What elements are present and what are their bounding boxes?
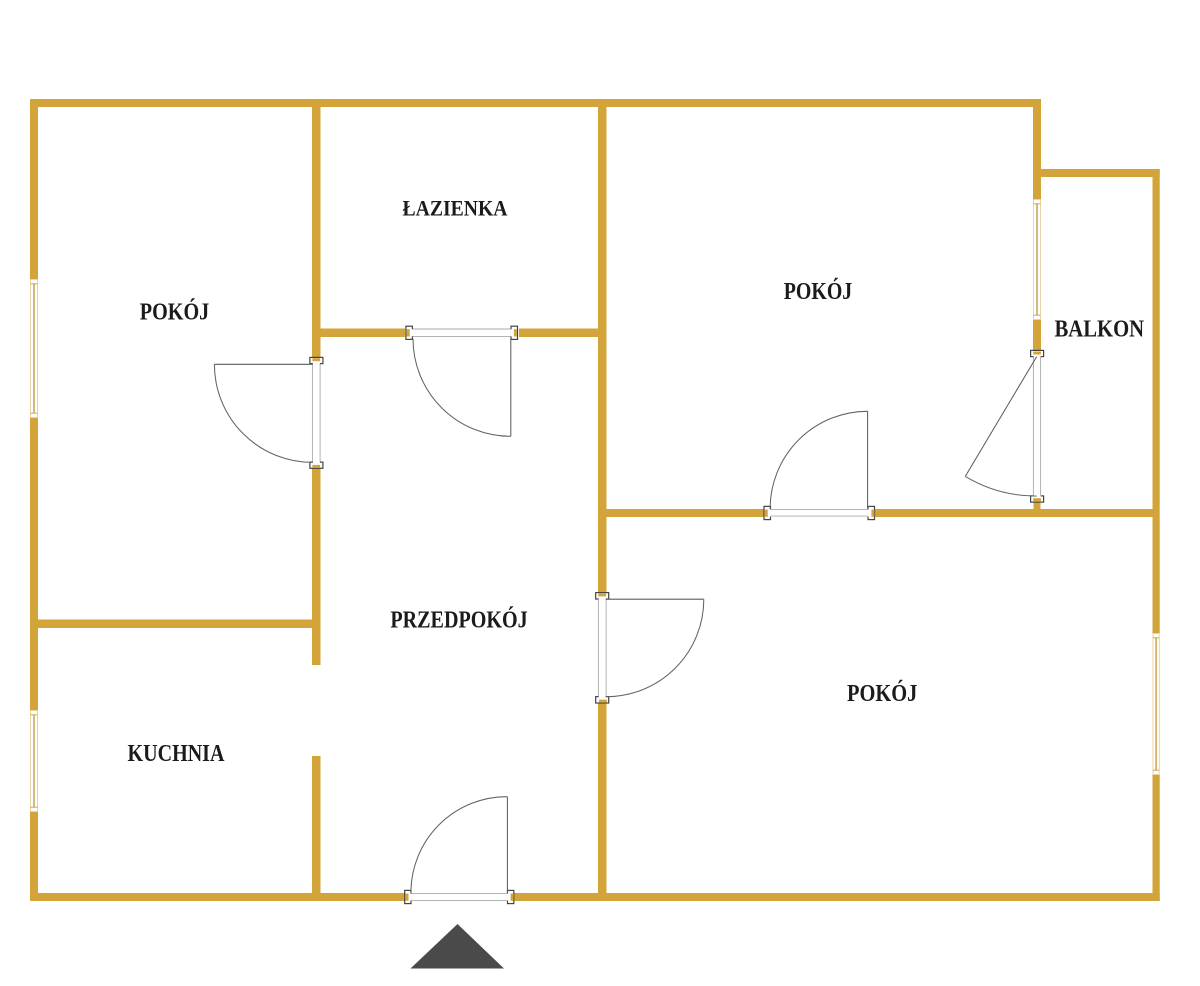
svg-text:PRZEDPOKÓJ: PRZEDPOKÓJ bbox=[390, 605, 527, 633]
svg-text:POKÓJ: POKÓJ bbox=[784, 276, 852, 304]
svg-text:ŁAZIENKA: ŁAZIENKA bbox=[403, 195, 509, 221]
svg-text:KUCHNIA: KUCHNIA bbox=[128, 739, 225, 766]
svg-text:POKÓJ: POKÓJ bbox=[140, 297, 209, 325]
svg-text:POKÓJ: POKÓJ bbox=[847, 679, 917, 707]
svg-text:BALKON: BALKON bbox=[1054, 315, 1144, 342]
